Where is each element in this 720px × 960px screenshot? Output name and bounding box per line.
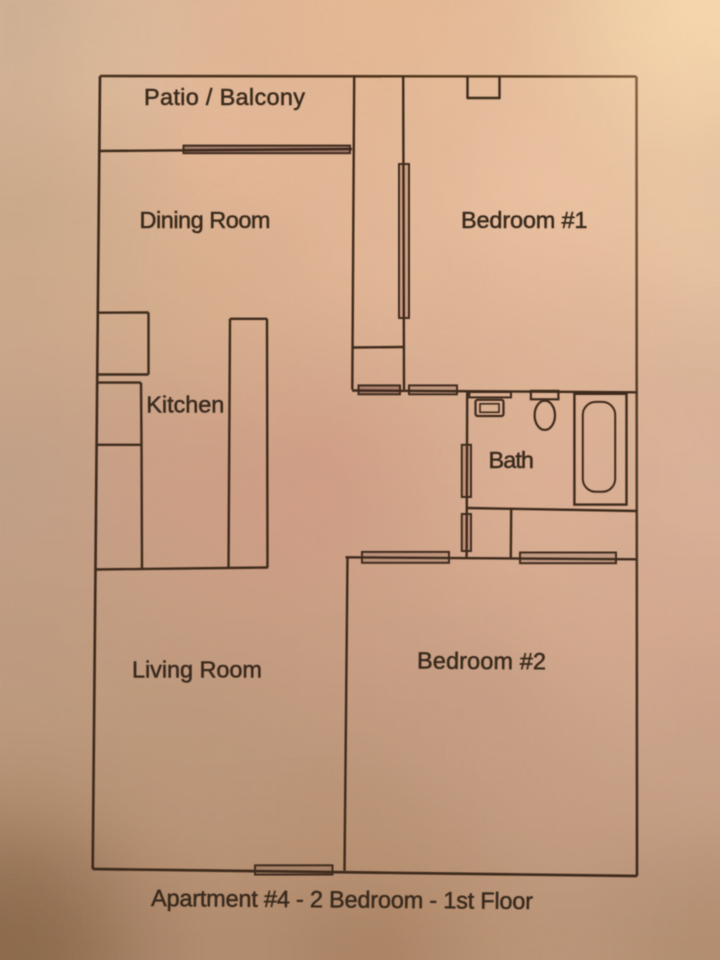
svg-text:Bedroom #1: Bedroom #1 (461, 207, 588, 233)
svg-text:Living Room: Living Room (132, 657, 262, 683)
svg-text:Kitchen: Kitchen (146, 392, 224, 418)
svg-text:Dining Room: Dining Room (140, 207, 271, 233)
svg-text:Bath: Bath (489, 447, 535, 473)
svg-text:Apartment #4 - 2 Bedroom - 1st: Apartment #4 - 2 Bedroom - 1st Floor (151, 885, 533, 914)
svg-text:Bedroom #2: Bedroom #2 (417, 648, 546, 675)
svg-text:Patio / Balcony: Patio / Balcony (144, 84, 305, 110)
